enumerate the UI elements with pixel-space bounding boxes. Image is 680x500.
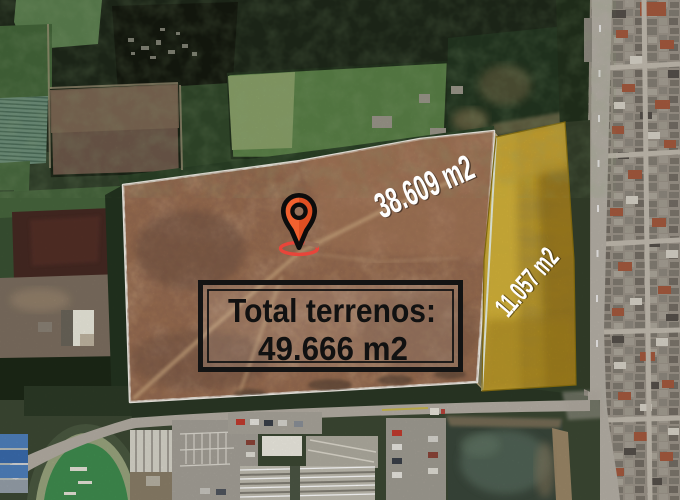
svg-text:49.666 m2: 49.666 m2: [258, 330, 408, 367]
svg-text:Total terrenos:: Total terrenos:: [228, 292, 436, 329]
